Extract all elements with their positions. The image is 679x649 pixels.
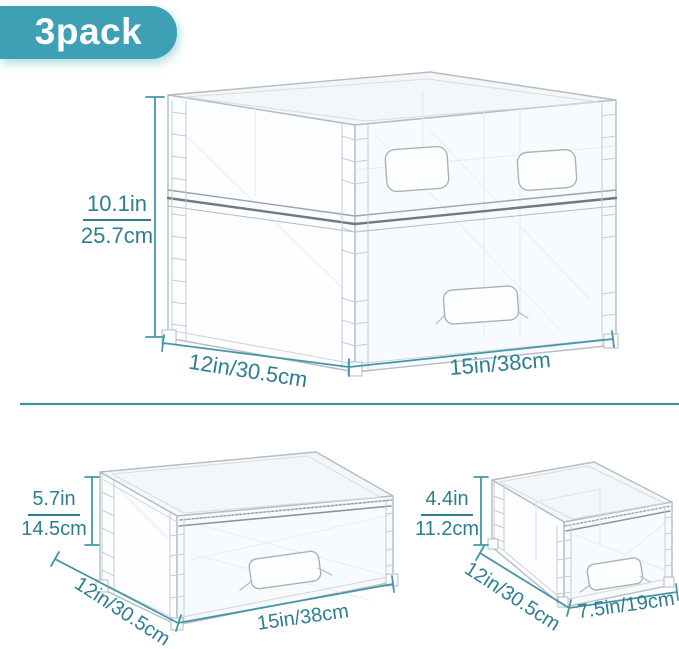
stacked-height-inches: 10.1in xyxy=(83,192,151,221)
small-drawer-height-label: 4.4in 11.2cm xyxy=(409,489,485,540)
large-drawer-height-label: 5.7in 14.5cm xyxy=(16,489,92,540)
stacked-height-label: 10.1in 25.7cm xyxy=(76,192,158,248)
small-drawer-height-cm: 11.2cm xyxy=(409,516,485,541)
small-drawer-height-inches: 4.4in xyxy=(421,489,472,516)
product-dimension-infographic: 3pack 10.1in 25.7cm 12in/30.5cm 15in/38c… xyxy=(0,0,679,649)
large-drawer-height-cm: 14.5cm xyxy=(16,516,92,541)
stacked-height-cm: 25.7cm xyxy=(76,221,158,248)
pack-count-badge: 3pack xyxy=(0,6,177,59)
large-drawer-height-inches: 5.7in xyxy=(28,489,79,516)
line-art-canvas xyxy=(0,0,679,649)
product-stacked-unit xyxy=(162,72,618,376)
